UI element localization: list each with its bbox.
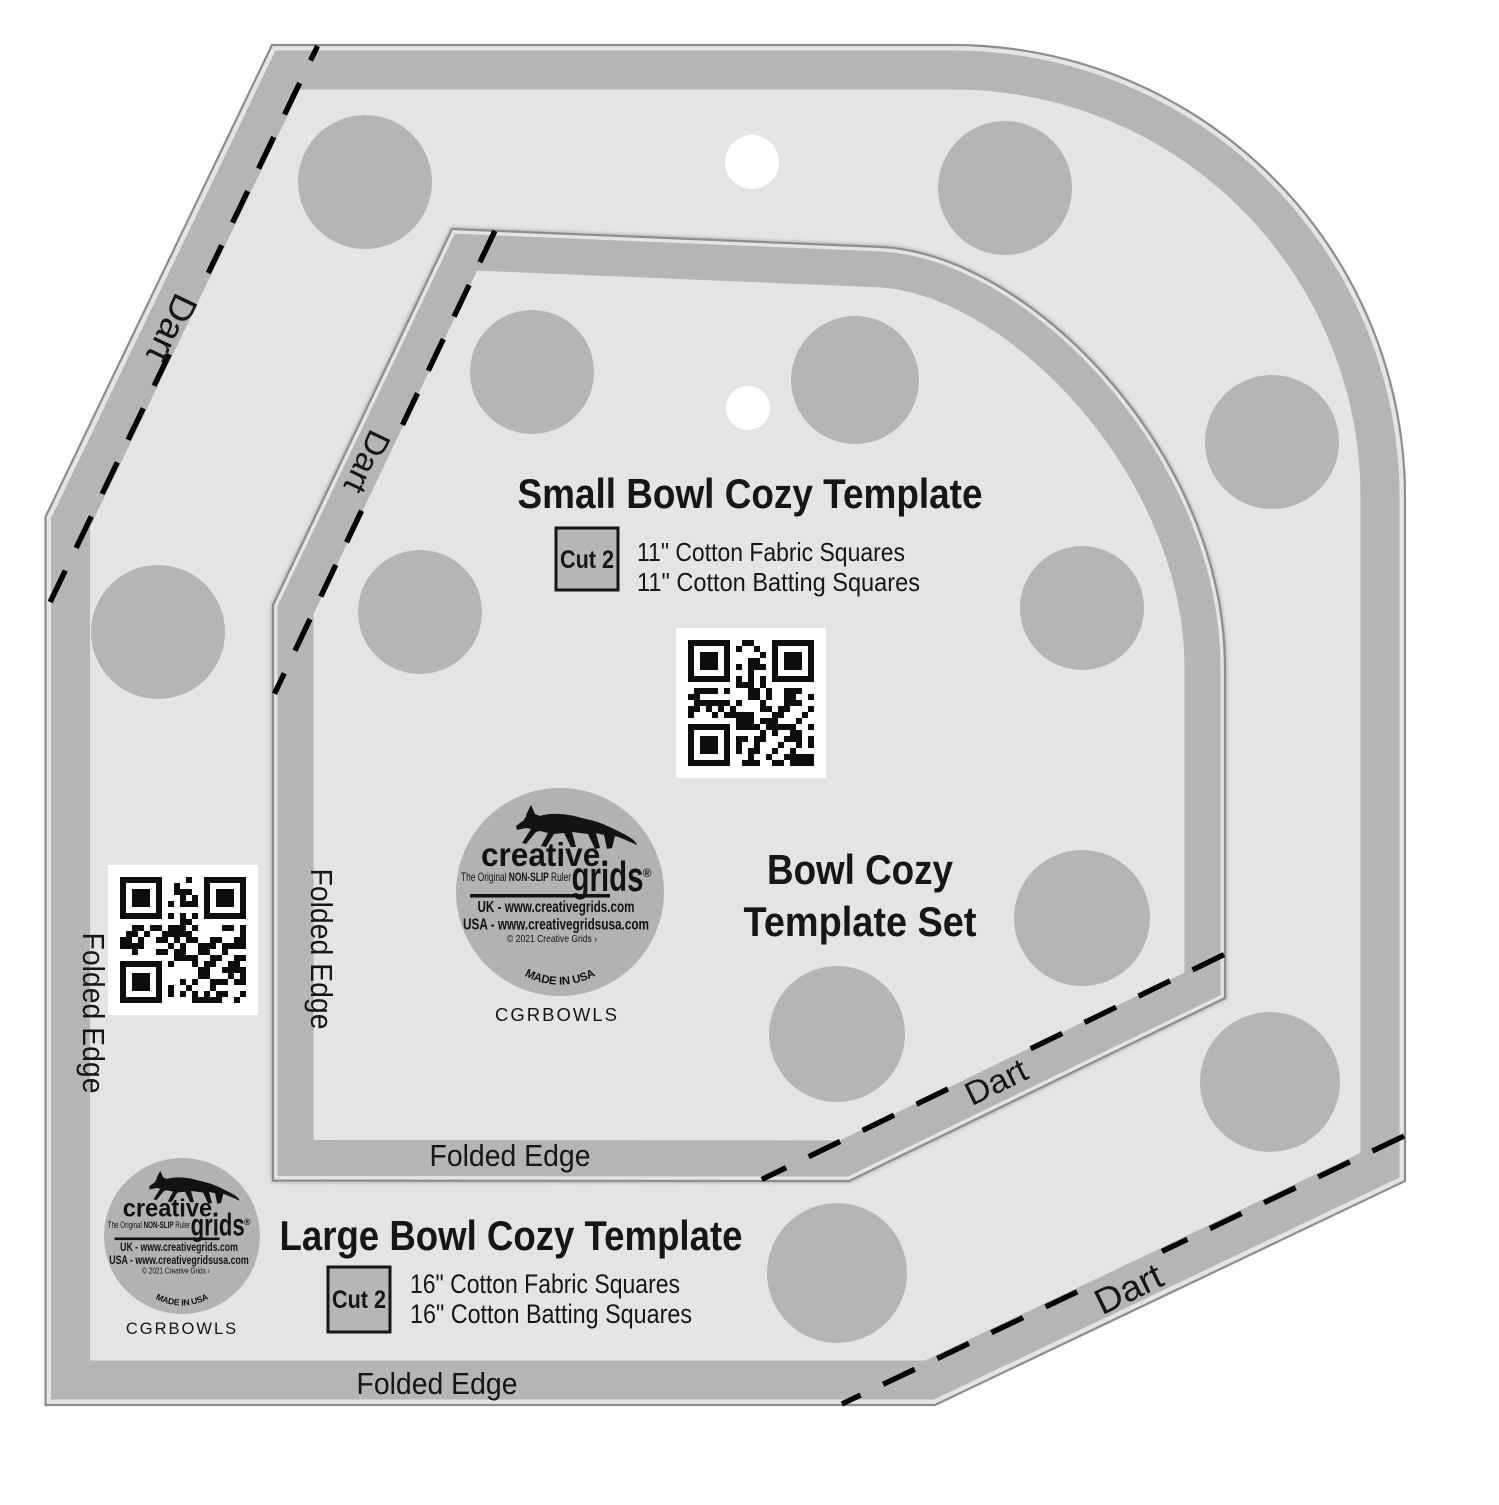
svg-text:© 2021 Creative Grids ›: © 2021 Creative Grids ›	[142, 1267, 210, 1276]
svg-text:11" Cotton Batting Squares: 11" Cotton Batting Squares	[637, 567, 920, 597]
svg-text:The Original NON-SLIP Ruler: The Original NON-SLIP Ruler	[108, 1220, 191, 1230]
svg-text:grids: grids	[572, 853, 644, 900]
svg-text:Folded Edge: Folded Edge	[357, 1366, 518, 1401]
svg-text:Large Bowl Cozy Template: Large Bowl Cozy Template	[280, 1212, 743, 1259]
svg-text:USA - www.creativegridsusa.com: USA - www.creativegridsusa.com	[109, 1253, 249, 1267]
svg-text:UK - www.creativegrids.com: UK - www.creativegrids.com	[120, 1240, 238, 1254]
svg-text:Folded Edge: Folded Edge	[76, 933, 111, 1094]
svg-text:®: ®	[643, 866, 652, 880]
svg-text:Cut 2: Cut 2	[560, 546, 614, 574]
svg-text:11" Cotton Fabric Squares: 11" Cotton Fabric Squares	[637, 537, 905, 567]
svg-text:CGRBOWLS: CGRBOWLS	[495, 1004, 619, 1025]
svg-text:UK - www.creativegrids.com: UK - www.creativegrids.com	[478, 899, 635, 916]
svg-text:®: ®	[244, 1217, 251, 1227]
svg-text:Folded Edge: Folded Edge	[430, 1138, 591, 1173]
svg-text:Cut 2: Cut 2	[332, 1286, 386, 1314]
svg-text:grids: grids	[191, 1206, 245, 1242]
svg-text:Template Set: Template Set	[744, 898, 977, 945]
svg-text:16" Cotton Fabric Squares: 16" Cotton Fabric Squares	[410, 1269, 680, 1299]
svg-text:USA - www.creativegridsusa.com: USA - www.creativegridsusa.com	[463, 917, 649, 934]
svg-text:Small Bowl Cozy Template: Small Bowl Cozy Template	[518, 470, 983, 517]
svg-text:© 2021 Creative Grids ›: © 2021 Creative Grids ›	[507, 933, 597, 945]
svg-text:The Original NON-SLIP Ruler: The Original NON-SLIP Ruler	[461, 870, 571, 884]
svg-text:Bowl Cozy: Bowl Cozy	[767, 846, 954, 893]
svg-text:16" Cotton Batting Squares: 16" Cotton Batting Squares	[410, 1299, 692, 1329]
svg-text:CGRBOWLS: CGRBOWLS	[126, 1320, 238, 1338]
svg-text:Folded Edge: Folded Edge	[304, 869, 339, 1030]
